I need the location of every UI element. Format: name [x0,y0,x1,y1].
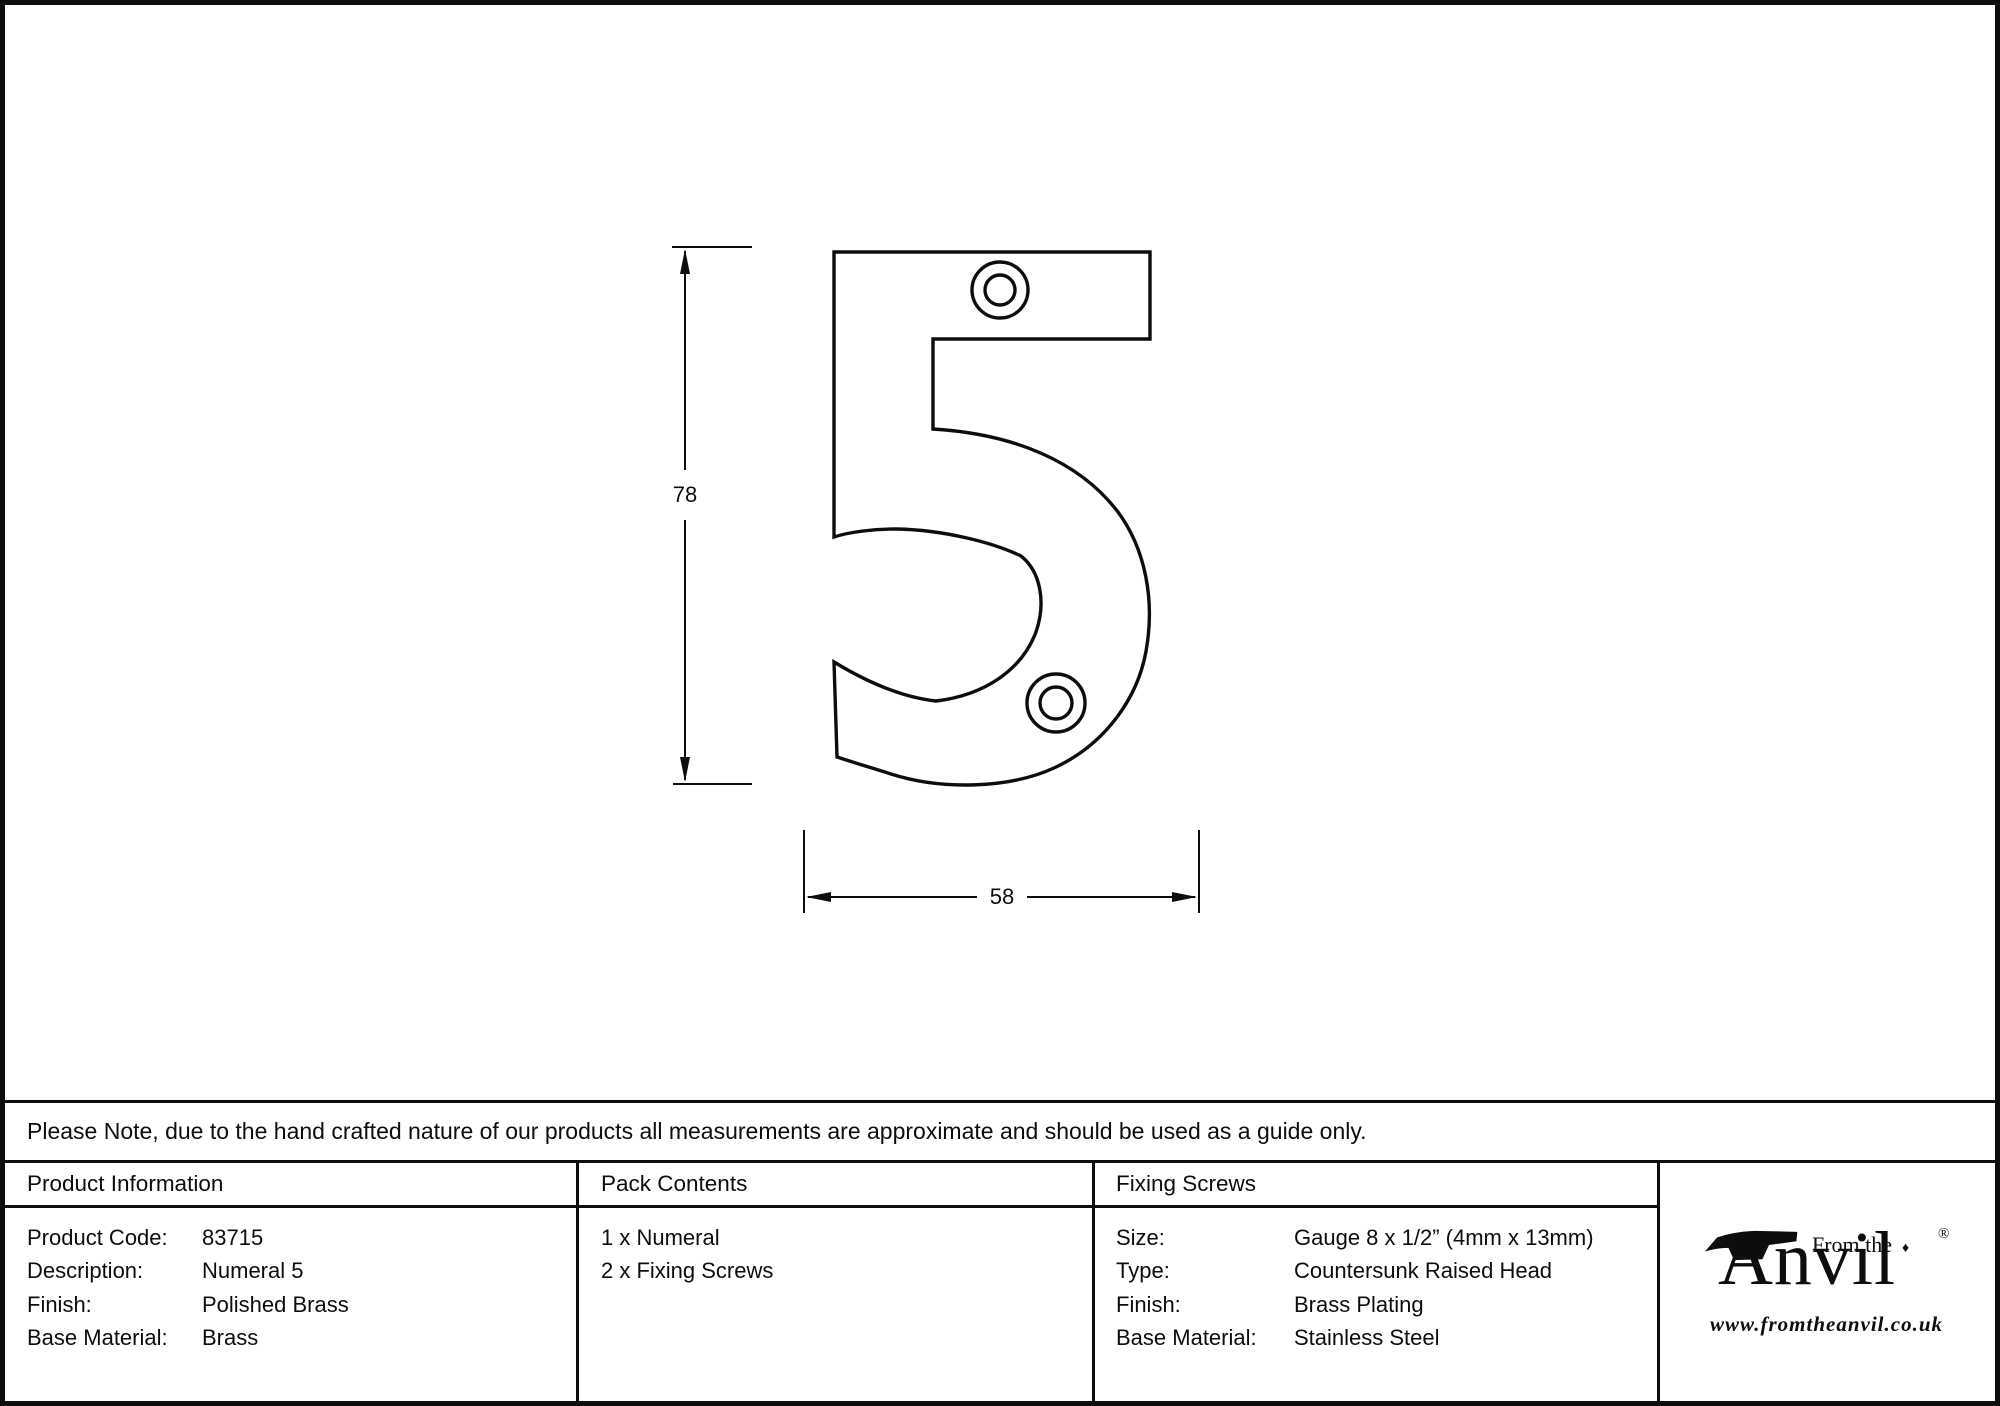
spec-value: Gauge 8 x 1/2” (4mm x 13mm) [1294,1221,1594,1254]
table-header-underline [5,1205,1657,1208]
spec-label: Product Code: [27,1221,202,1254]
height-dim-arrow-up [680,249,690,274]
spec-value: Brass Plating [1294,1288,1424,1321]
width-dimension-value: 58 [977,884,1027,910]
product-information-header: Product Information [27,1163,223,1205]
spec-label: Finish: [27,1288,202,1321]
registered-trademark-icon: ® [1938,1227,1949,1242]
height-dim-arrow-down [680,757,690,782]
product-information-body: Product Code: 83715 Description: Numeral… [27,1221,567,1355]
screw-hole-bottom-inner [1040,687,1072,719]
table-divider-1 [576,1163,579,1401]
table-row: Description: Numeral 5 [27,1254,567,1287]
anvil-icon [1704,1229,1800,1263]
spec-label: Base Material: [1116,1321,1294,1354]
table-row: Product Code: 83715 [27,1221,567,1254]
pack-contents-header: Pack Contents [601,1163,747,1205]
spec-label: Size: [1116,1221,1294,1254]
table-divider-2 [1092,1163,1095,1401]
numeral-5-technical-drawing [650,230,1220,930]
width-dim-arrow-left [806,892,831,902]
width-dim-arrow-right [1172,892,1197,902]
pack-content-item: 2 x Fixing Screws [601,1254,1081,1287]
spec-value: Stainless Steel [1294,1321,1440,1354]
table-row: Type: Countersunk Raised Head [1116,1254,1646,1287]
diamond-icon: ♦ [1902,1239,1909,1255]
screw-hole-top-inner [985,275,1015,305]
table-row: Base Material: Stainless Steel [1116,1321,1646,1354]
table-row: Finish: Polished Brass [27,1288,567,1321]
logo-website-url: www.fromtheanvil.co.uk [1710,1312,1943,1336]
spec-label: Type: [1116,1254,1294,1287]
logo-from-the-text: From the [1812,1234,1892,1256]
spec-value: Countersunk Raised Head [1294,1254,1552,1287]
spec-label: Description: [27,1254,202,1287]
table-row: Base Material: Brass [27,1321,567,1354]
pack-contents-body: 1 x Numeral 2 x Fixing Screws [601,1221,1081,1288]
from-the-anvil-logo: Anvil From the ♦ ® www.fromtheanvil.co.u… [1690,1225,1990,1345]
spec-label: Finish: [1116,1288,1294,1321]
table-row: Finish: Brass Plating [1116,1288,1646,1321]
disclaimer-note: Please Note, due to the hand crafted nat… [0,1100,2000,1163]
spec-value: Brass [202,1321,258,1354]
spec-value: 83715 [202,1221,263,1254]
table-divider-3 [1657,1163,1660,1401]
spec-value: Numeral 5 [202,1254,303,1287]
spec-value: Polished Brass [202,1288,349,1321]
table-row: Size: Gauge 8 x 1/2” (4mm x 13mm) [1116,1221,1646,1254]
spec-label: Base Material: [27,1321,202,1354]
fixing-screws-body: Size: Gauge 8 x 1/2” (4mm x 13mm) Type: … [1116,1221,1646,1355]
fixing-screws-header: Fixing Screws [1116,1163,1256,1205]
pack-content-item: 1 x Numeral [601,1221,1081,1254]
numeral-5-outline [834,252,1150,785]
height-dimension-value: 78 [660,482,710,508]
